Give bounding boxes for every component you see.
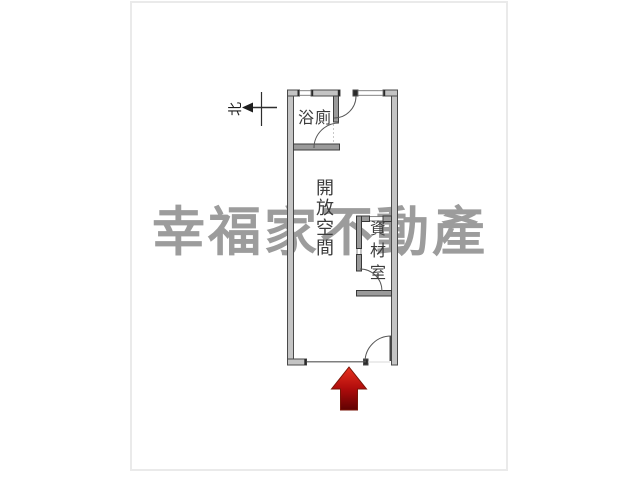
north-arrow [242, 92, 277, 126]
room-label-bathroom: 浴廁 [298, 104, 332, 128]
entrance-arrow-icon [332, 367, 367, 410]
room-label-open-space: 開放空間 [311, 178, 337, 262]
room-label-storage: 資材室 [363, 220, 387, 292]
entrance-door-arc [365, 336, 391, 362]
north-label: 北 [225, 102, 245, 116]
